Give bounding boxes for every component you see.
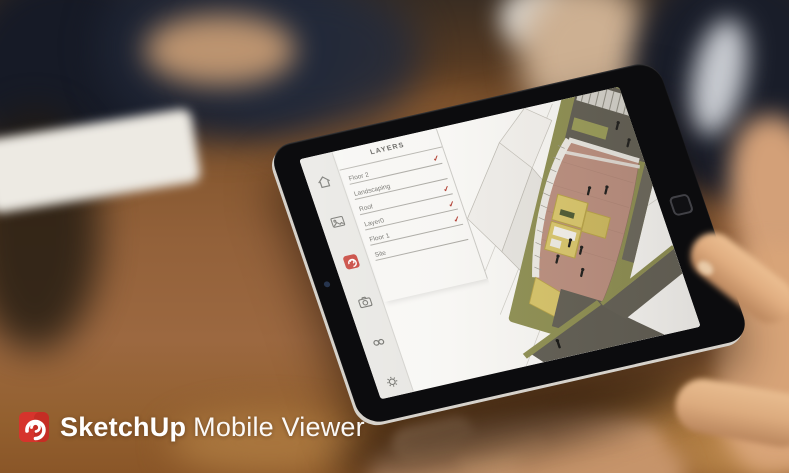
app-screen: LAYERS Floor 2 ✓ Landscaping ✓	[299, 87, 701, 400]
orbit-icon[interactable]	[369, 333, 388, 351]
visibility-check-icon[interactable]: ✓	[442, 185, 451, 194]
product-name: SketchUp	[60, 412, 186, 442]
camera-icon[interactable]	[355, 293, 374, 311]
home-button[interactable]	[668, 193, 694, 216]
front-camera	[323, 281, 331, 288]
branding-text: SketchUpMobile Viewer	[60, 412, 365, 443]
visibility-check-icon[interactable]: ✓	[447, 200, 456, 209]
visibility-check-icon[interactable]: ✓	[432, 154, 441, 163]
settings-gear-icon[interactable]	[382, 373, 401, 391]
visibility-check-icon[interactable]: ✓	[452, 215, 461, 224]
model-3d-viewport[interactable]	[437, 87, 701, 368]
scenes-icon[interactable]	[328, 213, 347, 231]
product-suffix: Mobile Viewer	[193, 412, 365, 442]
layer-name: Site	[374, 250, 387, 259]
sketchup-logo	[18, 410, 50, 444]
home-icon[interactable]	[314, 173, 333, 191]
photo-scene: LAYERS Floor 2 ✓ Landscaping ✓	[0, 0, 789, 473]
blurred-hands-on-table	[145, 15, 295, 85]
branding: SketchUpMobile Viewer	[18, 410, 365, 444]
sketchup-logo-icon[interactable]	[342, 253, 361, 271]
